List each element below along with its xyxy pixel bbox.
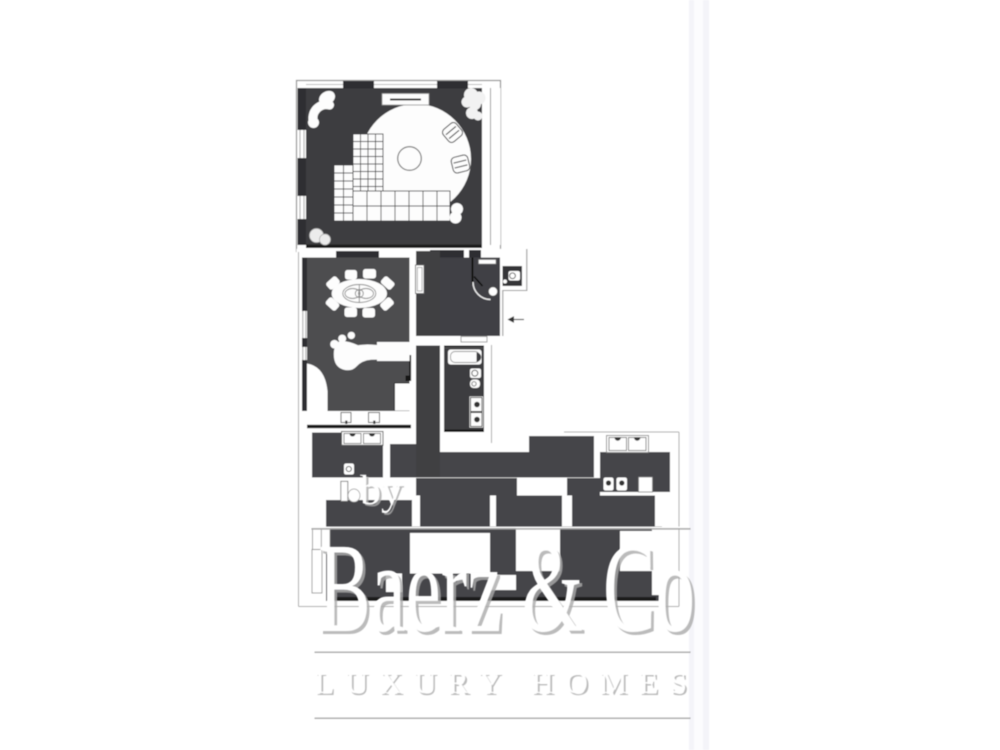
svg-text:by: by — [360, 468, 402, 514]
svg-text:Baerz & Co: Baerz & Co — [318, 517, 695, 659]
